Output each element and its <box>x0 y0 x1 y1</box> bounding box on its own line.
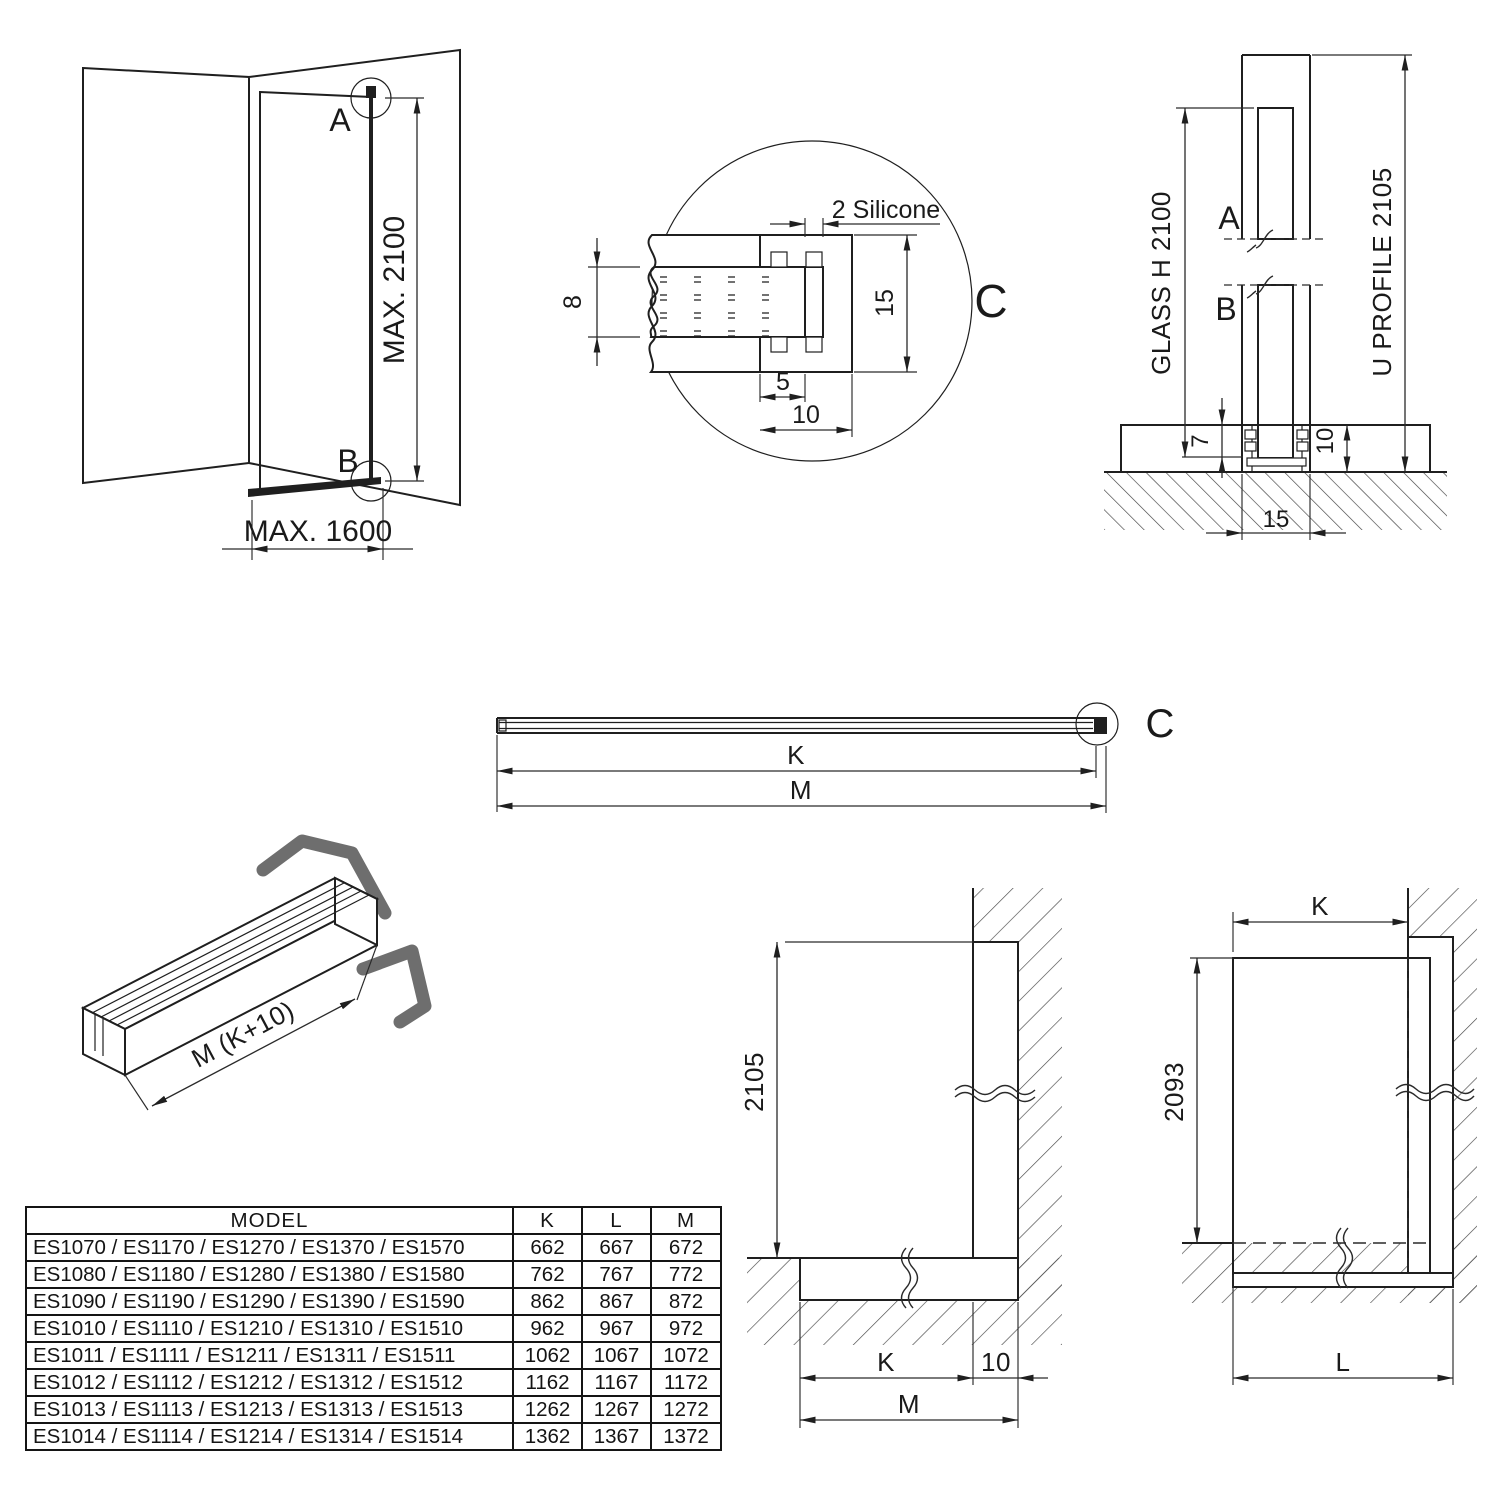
cell-model: ES1014 / ES1114 / ES1214 / ES1314 / ES15… <box>26 1423 513 1450</box>
view-corner-perspective: A B MAX. 2100 MAX. 1600 <box>83 50 460 560</box>
model-spec-table: MODEL K L M ES1070 / ES1170 / ES1270 / E… <box>25 1206 722 1451</box>
dim-k-topview: K <box>787 740 805 770</box>
label-b: B <box>337 443 358 479</box>
header-model: MODEL <box>26 1207 513 1234</box>
floor-profile-bar <box>248 477 381 497</box>
left-wall <box>83 68 249 483</box>
table-row: ES1013 / ES1113 / ES1213 / ES1313 / ES15… <box>26 1396 721 1423</box>
cell-k: 1262 <box>513 1396 582 1423</box>
cell-k: 762 <box>513 1261 582 1288</box>
dim-m-topview: M <box>790 775 812 805</box>
header-l: L <box>582 1207 651 1234</box>
cell-m: 1372 <box>651 1423 721 1450</box>
right-wall <box>249 50 460 505</box>
cell-model: ES1012 / ES1112 / ES1212 / ES1312 / ES15… <box>26 1369 513 1396</box>
cell-l: 767 <box>582 1261 651 1288</box>
table-row: ES1080 / ES1180 / ES1280 / ES1380 / ES15… <box>26 1261 721 1288</box>
dim-10-elevation: 10 <box>981 1347 1011 1377</box>
table-row: ES1014 / ES1114 / ES1214 / ES1314 / ES15… <box>26 1423 721 1450</box>
label-b-section: B <box>1215 291 1236 327</box>
cell-l: 867 <box>582 1288 651 1315</box>
dim-15: 15 <box>871 289 899 317</box>
cell-model: ES1010 / ES1110 / ES1210 / ES1310 / ES15… <box>26 1315 513 1342</box>
cell-l: 1367 <box>582 1423 651 1450</box>
cell-model: ES1011 / ES1111 / ES1211 / ES1311 / ES15… <box>26 1342 513 1369</box>
dim-u-profile: U PROFILE 2105 <box>1367 167 1397 376</box>
dim-10: 10 <box>792 401 820 429</box>
view-wall-section: A B GLASS H 2100 U PROFILE 2105 7 10 15 <box>1104 55 1447 540</box>
label-c: C <box>974 275 1007 327</box>
dim-10-profile-height: 10 <box>1312 428 1339 455</box>
label-a-section: A <box>1218 200 1240 236</box>
cell-l: 1267 <box>582 1396 651 1423</box>
dim-2105: 2105 <box>739 1052 769 1112</box>
cell-k: 862 <box>513 1288 582 1315</box>
cell-k: 962 <box>513 1315 582 1342</box>
cell-l: 667 <box>582 1234 651 1261</box>
header-k: K <box>513 1207 582 1234</box>
dim-m-elevation: M <box>898 1389 920 1419</box>
profile-end-cap <box>1094 719 1107 732</box>
table-row: ES1011 / ES1111 / ES1211 / ES1311 / ES15… <box>26 1342 721 1369</box>
table-row: ES1010 / ES1110 / ES1210 / ES1310 / ES15… <box>26 1315 721 1342</box>
cell-m: 1172 <box>651 1369 721 1396</box>
cell-model: ES1013 / ES1113 / ES1213 / ES1313 / ES15… <box>26 1396 513 1423</box>
cell-m: 972 <box>651 1315 721 1342</box>
dim-k-elevation: K <box>877 1347 895 1377</box>
cell-k: 1062 <box>513 1342 582 1369</box>
cell-model: ES1070 / ES1170 / ES1270 / ES1370 / ES15… <box>26 1234 513 1261</box>
label-c-topview: C <box>1146 702 1175 746</box>
table-row: ES1012 / ES1112 / ES1212 / ES1312 / ES15… <box>26 1369 721 1396</box>
dim-max-width: MAX. 1600 <box>244 515 392 548</box>
cell-k: 1162 <box>513 1369 582 1396</box>
glass-elevation <box>1233 958 1430 1273</box>
top-profile-tick <box>366 86 376 98</box>
cell-m: 1272 <box>651 1396 721 1423</box>
cell-m: 672 <box>651 1234 721 1261</box>
dim-k-glass: K <box>1311 891 1329 921</box>
cell-l: 967 <box>582 1315 651 1342</box>
label-a: A <box>329 102 351 138</box>
dim-max-height: MAX. 2100 <box>378 216 411 364</box>
corner-bracket-lower <box>363 951 425 1022</box>
dim-2093: 2093 <box>1159 1062 1189 1122</box>
view-profile-3d: M (K+10) <box>83 841 425 1110</box>
table-row: ES1070 / ES1170 / ES1270 / ES1370 / ES15… <box>26 1234 721 1261</box>
dim-l-glass: L <box>1336 1347 1351 1377</box>
cell-m: 772 <box>651 1261 721 1288</box>
cell-m: 872 <box>651 1288 721 1315</box>
cell-k: 662 <box>513 1234 582 1261</box>
dim-7: 7 <box>1187 434 1214 447</box>
dim-silicone: 2 Silicone <box>832 196 940 224</box>
cell-m: 1072 <box>651 1342 721 1369</box>
view-elevation-glass: K 2093 L <box>1159 888 1477 1385</box>
dim-15-profile-width: 15 <box>1263 506 1290 533</box>
header-m: M <box>651 1207 721 1234</box>
dim-glass-h: GLASS H 2100 <box>1146 191 1176 375</box>
glass-edge-profile <box>369 97 373 481</box>
dim-8: 8 <box>559 295 587 309</box>
cell-model: ES1080 / ES1180 / ES1280 / ES1380 / ES15… <box>26 1261 513 1288</box>
dim-5: 5 <box>776 368 790 396</box>
glass-upper <box>1258 108 1293 239</box>
cell-l: 1067 <box>582 1342 651 1369</box>
table-header-row: MODEL K L M <box>26 1207 721 1234</box>
view-detail-c: 8 15 2 Silicone 5 10 C <box>559 141 1008 461</box>
cell-k: 1362 <box>513 1423 582 1450</box>
table-row: ES1090 / ES1190 / ES1290 / ES1390 / ES15… <box>26 1288 721 1315</box>
view-elevation-profiles: 2105 K 10 M <box>739 888 1062 1428</box>
technical-drawing-page: A B MAX. 2100 MAX. 1600 8 15 <box>0 0 1500 1500</box>
cell-model: ES1090 / ES1190 / ES1290 / ES1390 / ES15… <box>26 1288 513 1315</box>
view-profile-top: C K M <box>497 702 1174 813</box>
cell-l: 1167 <box>582 1369 651 1396</box>
